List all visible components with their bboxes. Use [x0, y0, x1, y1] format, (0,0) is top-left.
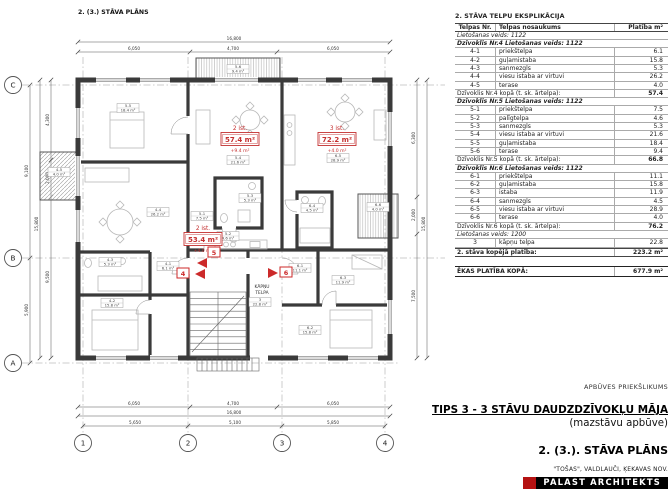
- svg-text:4.0 m²: 4.0 m²: [53, 172, 66, 177]
- furniture-bed: [330, 310, 372, 348]
- svg-text:4: 4: [383, 439, 388, 448]
- table-row: 2. stāva kopējā platība:223.2 m²: [455, 248, 668, 257]
- room-tag: 4-35.3 m²: [99, 257, 121, 267]
- table-row: 5-6terase9.4: [455, 148, 668, 156]
- room-tag: 6-64.0 m²: [367, 202, 389, 212]
- furniture-sofa: [374, 110, 386, 140]
- project-title: TIPS 3 - 3 STĀVU DAUDZDZĪVOKĻU MĀJA: [428, 404, 668, 416]
- svg-text:21.6 m²: 21.6 m²: [231, 160, 246, 165]
- table-row: 4-4viesu istaba ar virtuvi26.2: [455, 73, 668, 81]
- entry-arrow-6: [268, 268, 278, 278]
- svg-text:15,800: 15,800: [421, 216, 426, 231]
- svg-text:6: 6: [284, 269, 289, 277]
- apartment-label-6: 3 ist. 72.2 m² +4.0 m²: [318, 126, 356, 154]
- entry-arrow-5: [197, 258, 207, 268]
- svg-text:4,700: 4,700: [227, 401, 239, 406]
- svg-text:5.3 m²: 5.3 m²: [244, 198, 257, 203]
- sheet: 2. (3.) STĀVA PLĀNS 16,800 6,0: [0, 0, 670, 497]
- plan-title: 2. (3.) STĀVA PLĀNS: [78, 7, 149, 16]
- furniture-bathtub: [300, 228, 330, 243]
- room-tag: 5-421.6 m²: [227, 155, 249, 165]
- table-row: Lietošanas veids: 1122: [455, 32, 668, 40]
- room-tag: 5-35.3 m²: [239, 193, 261, 203]
- title-block: APBŪVES PRIEKŠLIKUMS TIPS 3 - 3 STĀVU DA…: [428, 383, 668, 489]
- furniture-sofa: [85, 168, 129, 182]
- svg-text:3: 3: [280, 439, 285, 448]
- table-row: 6-3istaba11.9: [455, 189, 668, 197]
- entry-arrow-4: [195, 269, 205, 279]
- furniture-sofa: [196, 110, 210, 144]
- table-row: 4-5terase4.0: [455, 82, 668, 90]
- table-row: 6-6terase4.0: [455, 214, 668, 222]
- firm-logo: PALAST ARCHITEKTS: [428, 477, 668, 489]
- svg-text:5,900: 5,900: [24, 304, 29, 316]
- grid-lines: [22, 57, 445, 433]
- svg-text:7,500: 7,500: [411, 290, 416, 302]
- table-row: 6-5viesu istaba ar virtuvi28.9: [455, 206, 668, 214]
- svg-text:22.8 m²: 22.8 m²: [253, 302, 268, 307]
- room-tag: 6-311.9 m²: [332, 275, 354, 285]
- svg-text:15.8 m²: 15.8 m²: [105, 303, 120, 308]
- room-tag: 5-17.5 m²: [191, 211, 213, 221]
- svg-text:6,050: 6,050: [128, 401, 140, 406]
- project-subtitle: (mazstāvu apbūve): [428, 418, 668, 429]
- firm-name: PALAST ARCHITEKTS: [536, 477, 668, 489]
- svg-text:4: 4: [181, 270, 186, 278]
- svg-text:A: A: [11, 359, 16, 368]
- room-tag: 6-44.5 m²: [301, 203, 323, 213]
- explication-header: Telpas Nr. Telpas nosaukums Platība m²: [455, 23, 668, 32]
- furniture-dining-table: [99, 201, 141, 243]
- proposal-note: APBŪVES PRIEKŠLIKUMS: [428, 383, 668, 391]
- svg-text:7.5 m²: 7.5 m²: [196, 216, 209, 221]
- svg-text:3 ist.: 3 ist.: [330, 126, 344, 132]
- svg-text:TELPA: TELPA: [254, 290, 268, 296]
- svg-text:6.1 m²: 6.1 m²: [162, 266, 175, 271]
- explication-panel: 2. STĀVA TELPU EKSPLIKĀCIJA Telpas Nr. T…: [455, 13, 668, 277]
- room-tag: 5-69.4 m²: [227, 64, 249, 74]
- column-header: Telpas nosaukums: [496, 24, 614, 31]
- svg-text:72.2 m²: 72.2 m²: [322, 136, 352, 144]
- furniture-bed: [110, 112, 144, 148]
- svg-text:57.4 m²: 57.4 m²: [225, 136, 255, 144]
- stair-label: KĀPŅU TELPA: [254, 283, 269, 296]
- building-total-row: ĒKAS PLATĪBA KOPĀ: 677.9 m²: [455, 266, 668, 278]
- project-address: "TOŠAS", VALDLAUČI, ĶEKAVAS NOV.: [428, 467, 668, 473]
- svg-text:4,700: 4,700: [227, 46, 239, 51]
- svg-text:1: 1: [81, 439, 86, 448]
- svg-text:5: 5: [212, 249, 217, 257]
- table-row: 6-1priekštelpa11.1: [455, 173, 668, 181]
- table-row: Dzīvoklis Nr.4 Lietošanas veids: 1122: [455, 40, 668, 48]
- building-total-label: ĒKAS PLATĪBA KOPĀ:: [455, 267, 614, 277]
- svg-text:53.4 m²: 53.4 m²: [188, 236, 218, 244]
- svg-text:+4.0 m²: +4.0 m²: [328, 148, 347, 154]
- svg-text:2: 2: [186, 439, 191, 448]
- building-total-value: 677.9 m²: [614, 267, 668, 277]
- room-tag: 4-54.0 m²: [48, 167, 70, 177]
- svg-text:2 ist.: 2 ist.: [196, 226, 210, 232]
- table-row: 4-3sanmezgls5.3: [455, 65, 668, 73]
- apartment-label-5: 2 ist. 57.4 m² +9.4 m²: [221, 126, 259, 154]
- svg-text:4.6 m²: 4.6 m²: [222, 236, 235, 241]
- firm-logo-red-square: [523, 477, 536, 489]
- svg-text:15.8 m²: 15.8 m²: [303, 330, 318, 335]
- furniture-bed: [92, 310, 138, 350]
- svg-text:6,050: 6,050: [128, 46, 140, 51]
- svg-text:4.0 m²: 4.0 m²: [372, 207, 385, 212]
- svg-text:26.2 m²: 26.2 m²: [151, 212, 166, 217]
- table-row: 5-3sanmezgls5.3: [455, 123, 668, 131]
- svg-text:5,650: 5,650: [129, 420, 141, 425]
- floor-plan-svg: 2. (3.) STĀVA PLĀNS 16,800 6,0: [0, 0, 450, 497]
- room-tag: 4-215.8 m²: [101, 298, 123, 308]
- table-row: Dzīvoklis Nr.6 Lietošanas veids: 1122: [455, 165, 668, 173]
- column-header: Platība m²: [614, 24, 668, 31]
- svg-text:6,300: 6,300: [411, 132, 416, 144]
- room-tag: 6-528.9 m²: [327, 153, 349, 163]
- table-row: Dzīvoklis Nr.5 kopā (t. sk. ārtelpa):66.…: [455, 156, 668, 164]
- room-tag: 4-16.1 m²: [157, 261, 179, 271]
- svg-text:18.4 m²: 18.4 m²: [121, 108, 136, 113]
- svg-text:5,100: 5,100: [229, 420, 241, 425]
- svg-text:KĀPŅU: KĀPŅU: [254, 283, 269, 290]
- svg-text:5,850: 5,850: [327, 420, 339, 425]
- svg-text:16,800: 16,800: [227, 36, 242, 41]
- svg-text:9.4 m²: 9.4 m²: [232, 69, 245, 74]
- table-row: 4-1priekštelpa6.1: [455, 48, 668, 56]
- room-tag: 322.8 m²: [249, 297, 271, 307]
- svg-text:4.5 m²: 4.5 m²: [306, 208, 319, 213]
- table-row: Dzīvoklis Nr.6 kopā (t. sk. ārtelpa):76.…: [455, 223, 668, 231]
- column-header: Telpas Nr.: [455, 24, 496, 31]
- svg-text:C: C: [10, 81, 15, 90]
- svg-text:11.9 m²: 11.9 m²: [336, 280, 351, 285]
- table-row: Lietošanas veids: 1200: [455, 231, 668, 239]
- svg-text:B: B: [11, 254, 16, 263]
- svg-text:16,800: 16,800: [227, 410, 242, 415]
- table-row: Dzīvoklis Nr.5 Lietošanas veids: 1122: [455, 98, 668, 106]
- table-row: 4-2guļamistaba15.8: [455, 57, 668, 65]
- room-tag: 4-426.2 m²: [147, 207, 169, 217]
- table-row: 6-2guļamistaba15.8: [455, 181, 668, 189]
- table-row: 3kāpņu telpa22.8: [455, 239, 668, 247]
- table-row: 6-4sanmezgls4.5: [455, 198, 668, 206]
- svg-text:28.9 m²: 28.9 m²: [331, 158, 346, 163]
- furniture-dining-table: [327, 94, 363, 130]
- table-row: Dzīvoklis Nr.4 kopā (t. sk. ārtelpa):57.…: [455, 90, 668, 98]
- table-row: 5-4viesu istaba ar virtuvi21.6: [455, 131, 668, 139]
- svg-text:9,500: 9,500: [45, 271, 50, 283]
- explication-rows: Lietošanas veids: 1122Dzīvoklis Nr.4 Lie…: [455, 32, 668, 257]
- sheet-title: 2. (3.). STĀVA PLĀNS: [428, 444, 668, 457]
- svg-text:2,000: 2,000: [411, 209, 416, 221]
- svg-text:+9.4 m²: +9.4 m²: [231, 148, 250, 154]
- svg-text:15,800: 15,800: [34, 216, 39, 231]
- svg-text:5.3 m²: 5.3 m²: [104, 262, 117, 267]
- svg-text:4,300: 4,300: [45, 114, 50, 126]
- svg-text:2 ist.: 2 ist.: [233, 126, 247, 132]
- table-row: 5-2palīgtelpa4.6: [455, 115, 668, 123]
- room-tag: 5-518.4 m²: [117, 103, 139, 113]
- svg-text:6,050: 6,050: [327, 46, 339, 51]
- furniture-bathtub: [98, 276, 142, 291]
- room-tag: 6-215.8 m²: [299, 325, 321, 335]
- explication-title: 2. STĀVA TELPU EKSPLIKĀCIJA: [455, 13, 668, 20]
- table-row: 5-5guļamistaba18.4: [455, 140, 668, 148]
- svg-text:6,050: 6,050: [327, 401, 339, 406]
- svg-text:9,100: 9,100: [24, 165, 29, 177]
- table-row: 5-1priekštelpa7.5: [455, 106, 668, 114]
- svg-text:11.1 m²: 11.1 m²: [293, 268, 308, 273]
